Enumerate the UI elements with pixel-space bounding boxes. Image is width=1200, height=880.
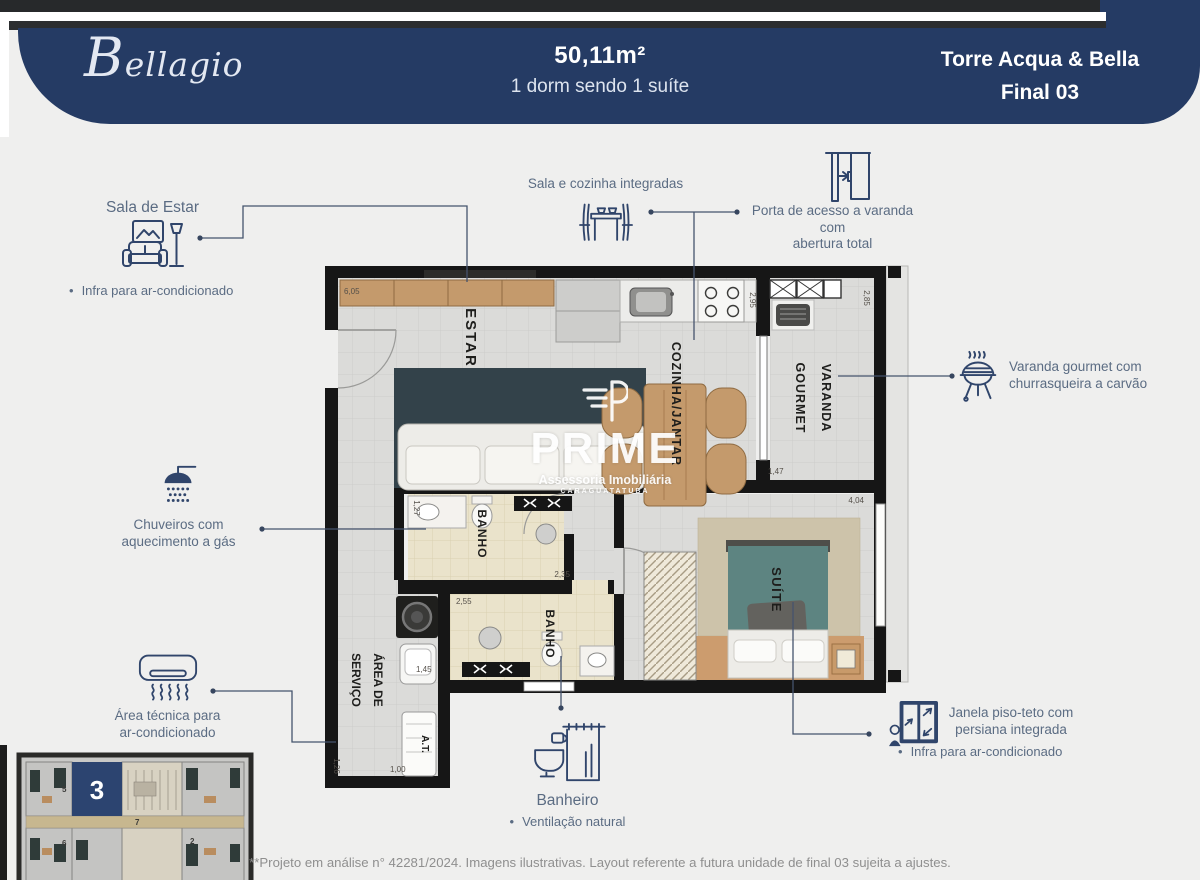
header-center: 50,11m² 1 dorm sendo 1 suíte: [430, 42, 770, 98]
callout-porta-line2: abertura total: [740, 236, 925, 253]
label-banho2: BANHO: [543, 610, 557, 659]
callout-chuveiros-line2: aquecimento a gás: [86, 534, 271, 551]
tower-name: Torre Acqua & Bella: [915, 44, 1165, 77]
callout-porta-line1: Porta de acesso a varanda com: [740, 203, 925, 236]
callout-cozinha-title: Sala e cozinha integradas: [498, 176, 713, 193]
callout-janela-line2: persiana integrada: [936, 722, 1086, 739]
callout-porta: Porta de acesso a varanda com abertura t…: [740, 203, 925, 253]
dining-table-icon: [575, 199, 637, 251]
top-bar: [0, 0, 1112, 12]
dim-at-h: 1,26: [332, 758, 341, 774]
ac-unit-icon: [138, 653, 198, 703]
callout-janela-bullet: Infra para ar-condicionado: [898, 744, 1113, 759]
dim-banho1-h: 1,27: [412, 500, 421, 516]
prime-logo-icon: [582, 380, 628, 422]
callout-area-tecnica: Área técnica para ar-condicionado: [90, 653, 245, 741]
brand-logo: Bellagio: [84, 36, 324, 84]
suite-window: [876, 504, 885, 626]
header-right: Torre Acqua & Bella Final 03: [915, 44, 1165, 109]
callout-varanda-line2: churrasqueira a carvão: [1009, 376, 1179, 393]
callout-janela: Janela piso-teto com persiana integrada: [936, 705, 1086, 738]
bbq-grill-icon: [956, 350, 1000, 402]
shower-icon: [154, 462, 204, 512]
callout-cozinha: Sala e cozinha integradas: [498, 176, 713, 256]
dim-varanda-w: 1,47: [768, 467, 784, 476]
watermark: PRIME Assessoria Imobiliária CARAGUATATU…: [520, 380, 690, 495]
watermark-city: CARAGUATATUBA: [520, 488, 690, 495]
sideboard: [340, 280, 554, 306]
keyplan-unit-5: 5: [62, 785, 67, 794]
label-suite: SUÍTE: [769, 567, 784, 613]
dim-banho2-w: 2,55: [456, 597, 472, 606]
dim-suite: 4,04: [848, 496, 864, 505]
dim-servico: 1,45: [416, 665, 432, 674]
callout-varanda: Varanda gourmet com churrasqueira a carv…: [956, 350, 1179, 402]
varanda-glass-door: [760, 336, 767, 460]
callout-chuveiros: Chuveiros com aquecimento a gás: [86, 462, 271, 550]
chair: [706, 388, 746, 438]
label-servico-1: ÁREA DE: [371, 653, 386, 707]
callout-sala-estar-title: Sala de Estar: [55, 199, 250, 217]
keyplan-unit-7: 7: [135, 818, 140, 827]
dim-banho1-w: 2,35: [554, 570, 570, 579]
dim-cozinha: 2,95: [748, 292, 757, 308]
keyplan-unit-6: 6: [62, 839, 67, 848]
suite-opening: [614, 548, 624, 594]
white-strip: [8, 12, 1106, 21]
dim-at-w: 1,00: [390, 765, 406, 774]
callout-varanda-text: Varanda gourmet com churrasqueira a carv…: [1009, 359, 1179, 392]
footer-disclaimer: **Projeto em análise n° 42281/2024. Imag…: [0, 855, 1200, 870]
label-servico-2: SERVIÇO: [349, 653, 363, 707]
label-varanda-2: GOURMET: [793, 363, 807, 434]
balcony-ledge: [886, 266, 908, 682]
dim-varanda-h: 2,85: [862, 290, 871, 306]
label-at: A.T.: [419, 735, 430, 753]
shower-glass: [514, 496, 572, 511]
callout-chuveiros-line1: Chuveiros com: [86, 517, 271, 534]
left-white-strip: [0, 12, 9, 137]
unit-program: 1 dorm sendo 1 suíte: [430, 76, 770, 98]
callout-varanda-line1: Varanda gourmet com: [1009, 359, 1179, 376]
dim-estar: 6,05: [344, 287, 360, 296]
sofa-lamp-icon: [119, 220, 187, 274]
callout-area-tecnica-line1: Área técnica para: [90, 708, 245, 725]
banho2-opening: [572, 580, 608, 594]
chair: [706, 444, 746, 494]
callout-sala-estar-bullet: Infra para ar-condicionado: [55, 283, 250, 298]
floor-hall: [338, 482, 400, 582]
watermark-tagline: Assessoria Imobiliária: [520, 473, 690, 487]
flyer-page: Bellagio 50,11m² 1 dorm sendo 1 suíte To…: [0, 0, 1200, 880]
callout-sala-estar: Sala de Estar Infra para ar-condicionado: [55, 199, 250, 298]
entry-opening: [325, 330, 338, 388]
tv-panel: [424, 270, 536, 278]
wardrobe: [644, 552, 696, 680]
keyplan-unit-2: 2: [190, 837, 195, 846]
label-banho1: BANHO: [475, 510, 489, 559]
label-varanda-1: VARANDA: [819, 364, 833, 433]
floor-plan: ESTAR COZINHA/JANTAR VARANDA GOURMET BAN…: [325, 262, 910, 795]
shower-glass: [462, 662, 530, 677]
sliding-door-icon: [824, 150, 872, 204]
watermark-name: PRIME: [520, 427, 690, 471]
banho2-window: [524, 682, 574, 691]
callout-janela-line1: Janela piso-teto com: [936, 705, 1086, 722]
unit-area: 50,11m²: [430, 42, 770, 70]
label-estar: ESTAR: [462, 308, 479, 368]
callout-banheiro-bullet: Ventilação natural: [505, 814, 630, 829]
stove: [698, 280, 744, 322]
unit-number: Final 03: [915, 77, 1165, 110]
charcoal-grill: [776, 304, 810, 326]
keyplan-unit-3: 3: [90, 775, 104, 805]
callout-area-tecnica-line2: ar-condicionado: [90, 725, 245, 742]
